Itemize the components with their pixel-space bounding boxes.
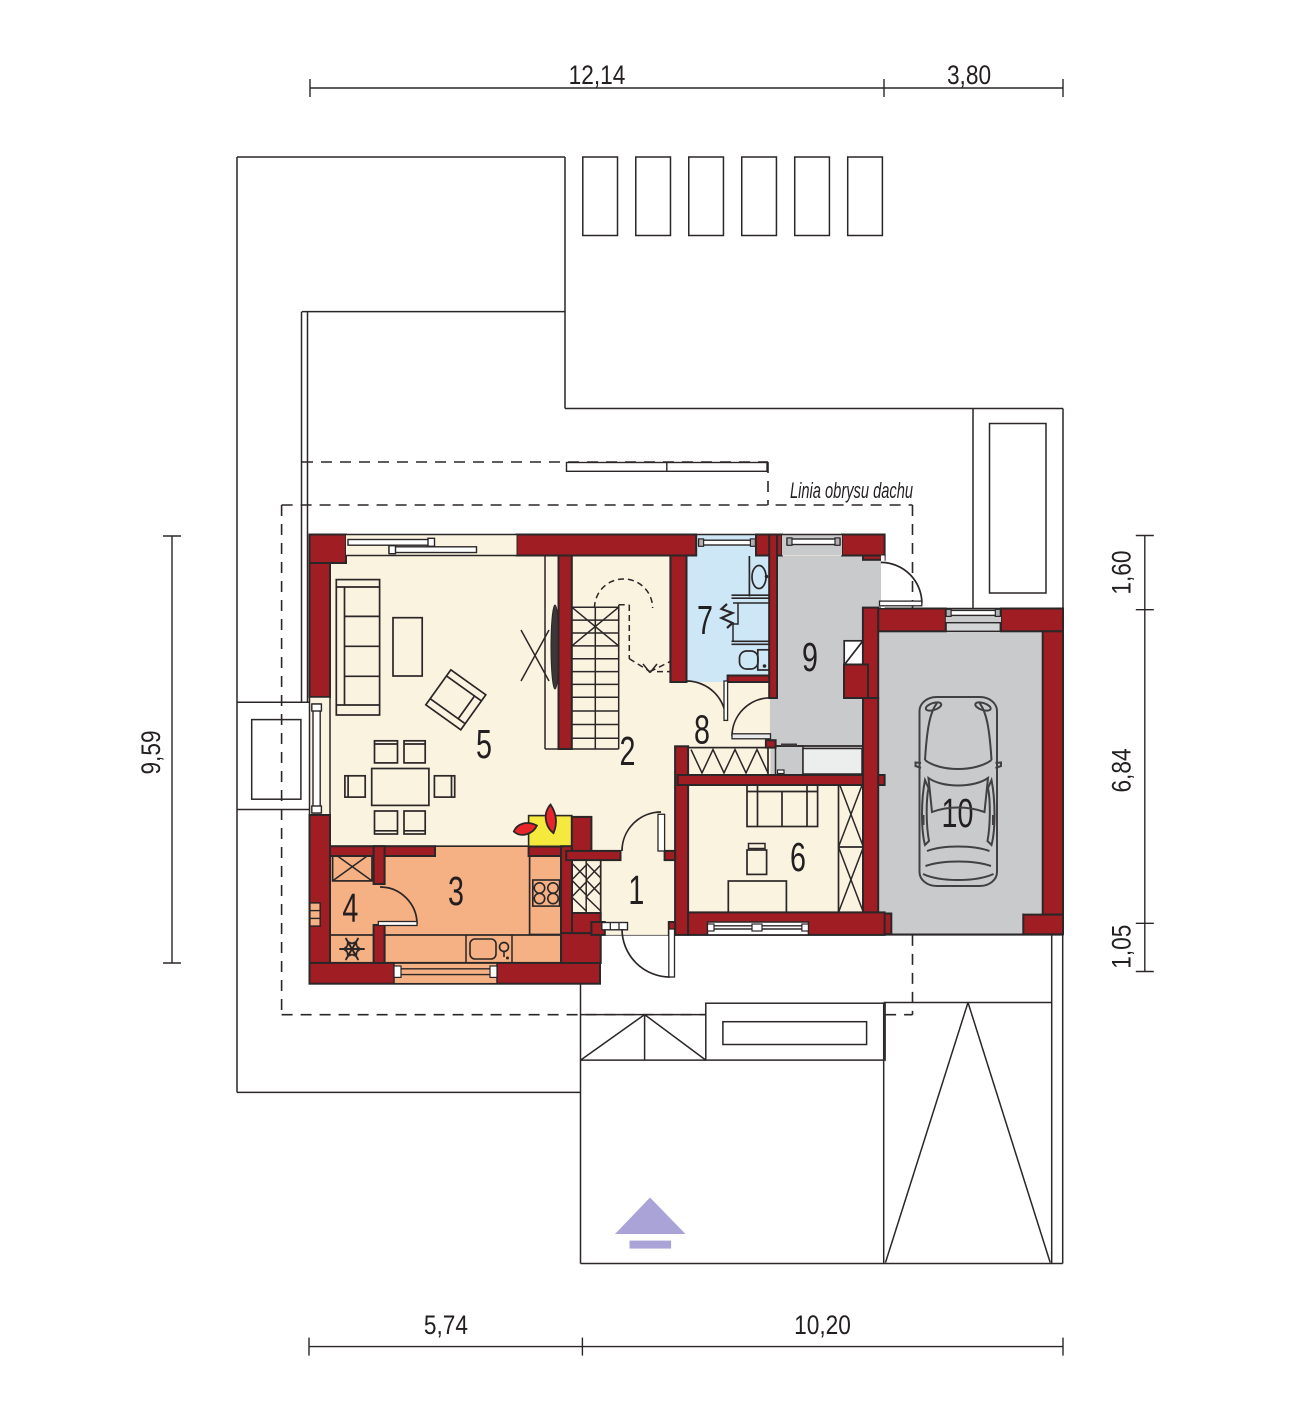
svg-text:10: 10 [942, 791, 974, 836]
svg-text:5,74: 5,74 [424, 1310, 468, 1340]
svg-text:5: 5 [476, 722, 492, 767]
svg-text:4: 4 [342, 886, 358, 931]
svg-text:Linia obrysu dachu: Linia obrysu dachu [790, 478, 913, 503]
svg-text:8: 8 [694, 708, 710, 753]
svg-text:3,80: 3,80 [947, 60, 991, 90]
svg-text:3: 3 [448, 869, 464, 914]
svg-text:9,59: 9,59 [136, 730, 166, 774]
svg-text:6: 6 [790, 835, 806, 880]
svg-text:1,05: 1,05 [1107, 925, 1137, 969]
svg-text:1: 1 [628, 868, 644, 913]
svg-text:1,60: 1,60 [1107, 551, 1137, 595]
svg-text:9: 9 [802, 635, 818, 680]
svg-text:6,84: 6,84 [1107, 748, 1137, 792]
svg-text:7: 7 [697, 598, 713, 643]
svg-text:12,14: 12,14 [569, 60, 626, 90]
svg-text:10,20: 10,20 [794, 1310, 851, 1340]
svg-text:2: 2 [620, 729, 636, 774]
